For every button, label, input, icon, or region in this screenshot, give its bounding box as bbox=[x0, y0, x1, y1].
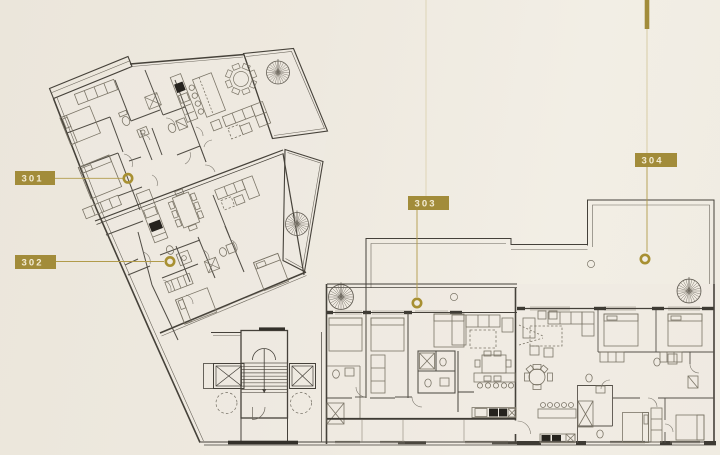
svg-text:302: 302 bbox=[22, 258, 44, 269]
svg-text:301: 301 bbox=[22, 174, 44, 185]
svg-text:303: 303 bbox=[415, 199, 437, 210]
svg-text:304: 304 bbox=[642, 156, 664, 167]
